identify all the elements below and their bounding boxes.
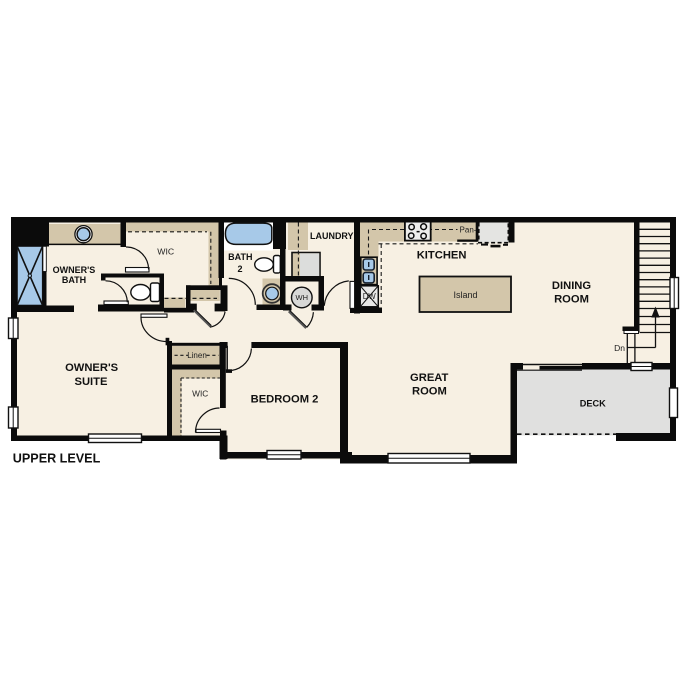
svg-text:OWNER'S: OWNER'S	[53, 265, 96, 275]
svg-text:BEDROOM 2: BEDROOM 2	[251, 394, 319, 406]
svg-text:UPPER LEVEL: UPPER LEVEL	[13, 451, 101, 465]
svg-text:DECK: DECK	[580, 399, 606, 409]
svg-text:WIC: WIC	[192, 389, 208, 399]
svg-text:Island: Island	[453, 290, 477, 300]
svg-text:GREAT: GREAT	[410, 372, 448, 384]
svg-text:2: 2	[237, 264, 242, 274]
svg-text:DINING: DINING	[552, 280, 591, 292]
svg-text:ROOM: ROOM	[554, 294, 589, 306]
svg-text:WH: WH	[296, 293, 309, 302]
svg-text:OWNER'S: OWNER'S	[65, 362, 119, 374]
svg-text:Linen: Linen	[187, 351, 207, 360]
svg-text:Pan-: Pan-	[460, 226, 477, 235]
svg-text:BATH: BATH	[62, 275, 86, 285]
svg-text:DW: DW	[363, 292, 377, 301]
svg-text:KITCHEN: KITCHEN	[417, 249, 467, 261]
svg-text:SUITE: SUITE	[75, 376, 108, 388]
svg-text:LAUNDRY: LAUNDRY	[310, 231, 354, 241]
svg-text:WIC: WIC	[157, 247, 174, 257]
svg-text:Dn: Dn	[614, 343, 625, 353]
svg-text:ROOM: ROOM	[412, 386, 447, 398]
svg-text:BATH: BATH	[228, 252, 252, 262]
